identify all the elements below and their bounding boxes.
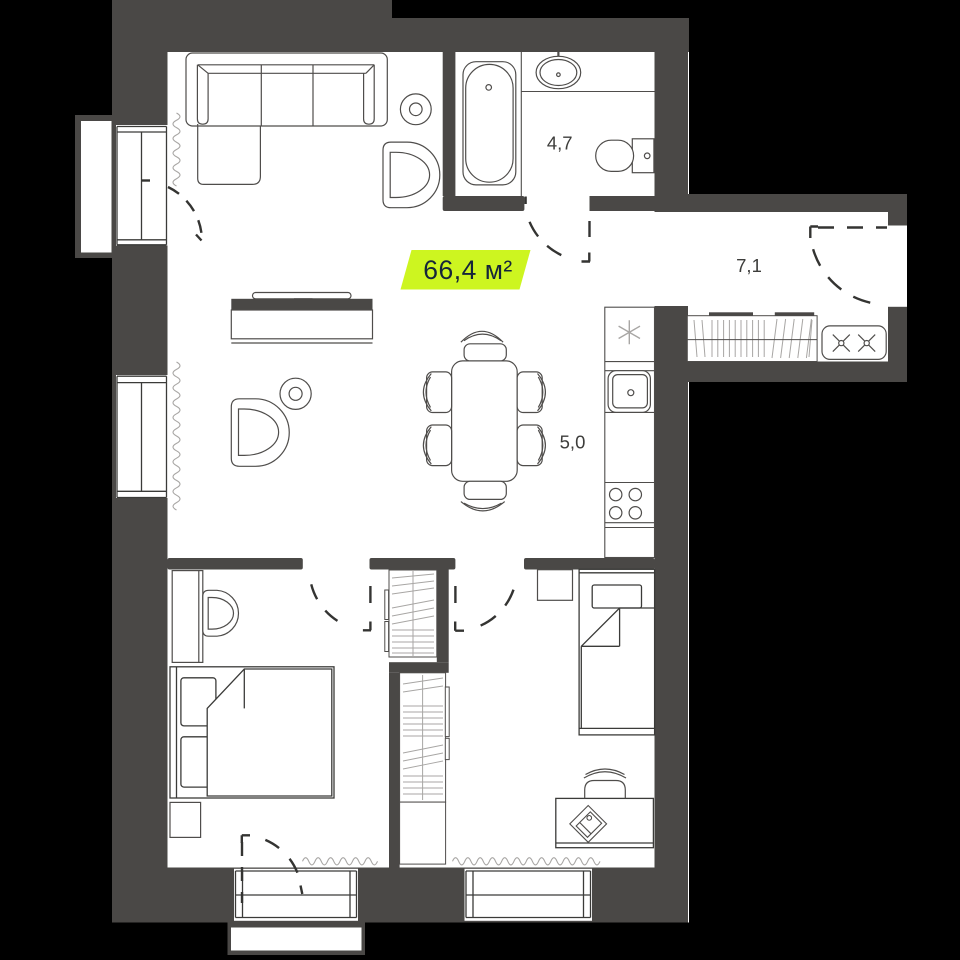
- svg-text:66,4 м²: 66,4 м²: [423, 255, 512, 285]
- svg-text:7,1: 7,1: [736, 255, 762, 276]
- svg-text:5,0: 5,0: [560, 432, 586, 453]
- svg-text:4,7: 4,7: [547, 133, 573, 154]
